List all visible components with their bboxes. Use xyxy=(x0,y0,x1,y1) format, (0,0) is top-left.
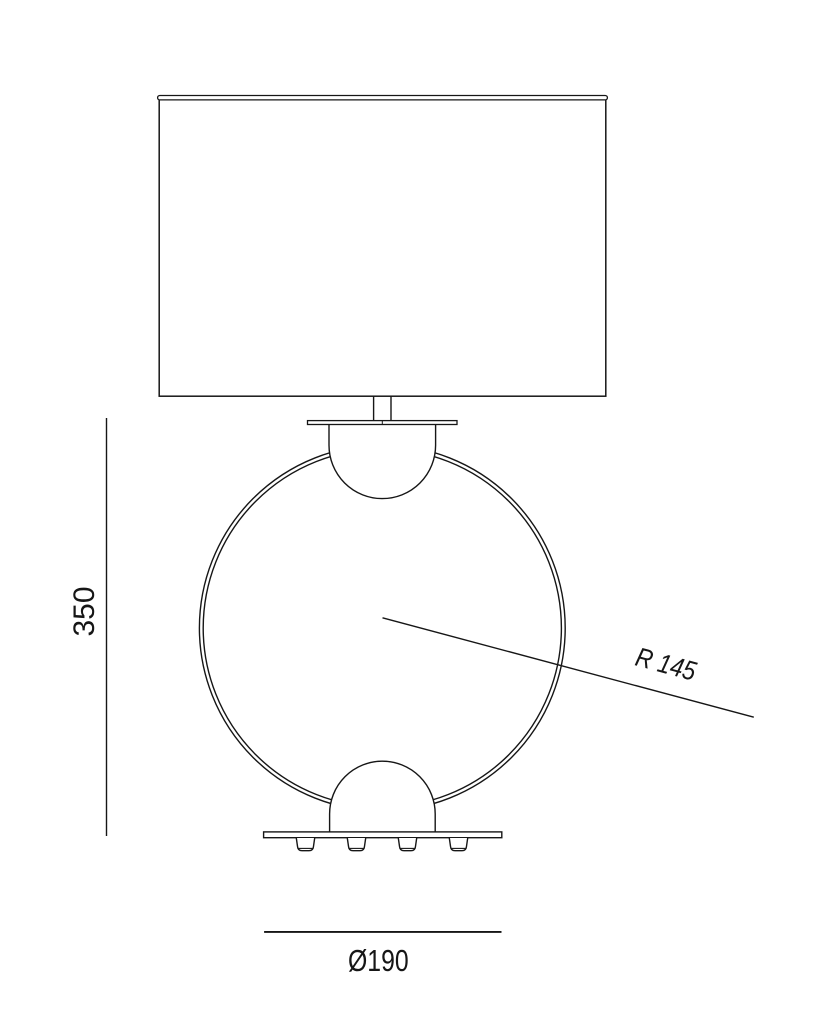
svg-text:Ø190: Ø190 xyxy=(348,943,409,977)
svg-text:350: 350 xyxy=(68,586,101,636)
